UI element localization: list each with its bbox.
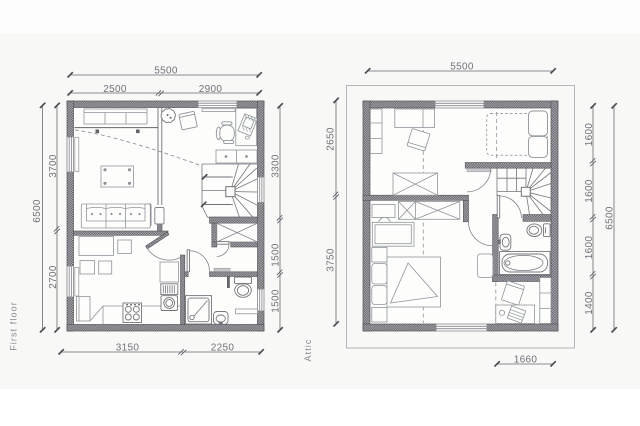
svg-text:3750: 3750 — [326, 248, 337, 272]
svg-text:2250: 2250 — [211, 343, 235, 354]
svg-text:1660: 1660 — [514, 355, 538, 366]
svg-text:2650: 2650 — [326, 127, 337, 151]
svg-text:5500: 5500 — [154, 65, 178, 76]
svg-text:1500: 1500 — [271, 243, 282, 267]
svg-text:1600: 1600 — [584, 123, 595, 147]
svg-text:1400: 1400 — [584, 291, 595, 315]
svg-text:3700: 3700 — [48, 154, 59, 178]
svg-text:2900: 2900 — [199, 84, 223, 95]
svg-text:6500: 6500 — [605, 206, 616, 230]
svg-text:2500: 2500 — [103, 84, 127, 95]
svg-text:2700: 2700 — [48, 265, 59, 289]
svg-text:1600: 1600 — [584, 236, 595, 260]
svg-text:Attic: Attic — [303, 338, 313, 361]
svg-text:First floor: First floor — [9, 301, 19, 351]
svg-text:3150: 3150 — [116, 343, 140, 354]
svg-text:3300: 3300 — [271, 154, 282, 178]
svg-text:6500: 6500 — [32, 199, 43, 223]
svg-text:1600: 1600 — [584, 179, 595, 203]
svg-text:1500: 1500 — [271, 289, 282, 313]
svg-text:5500: 5500 — [450, 62, 474, 73]
